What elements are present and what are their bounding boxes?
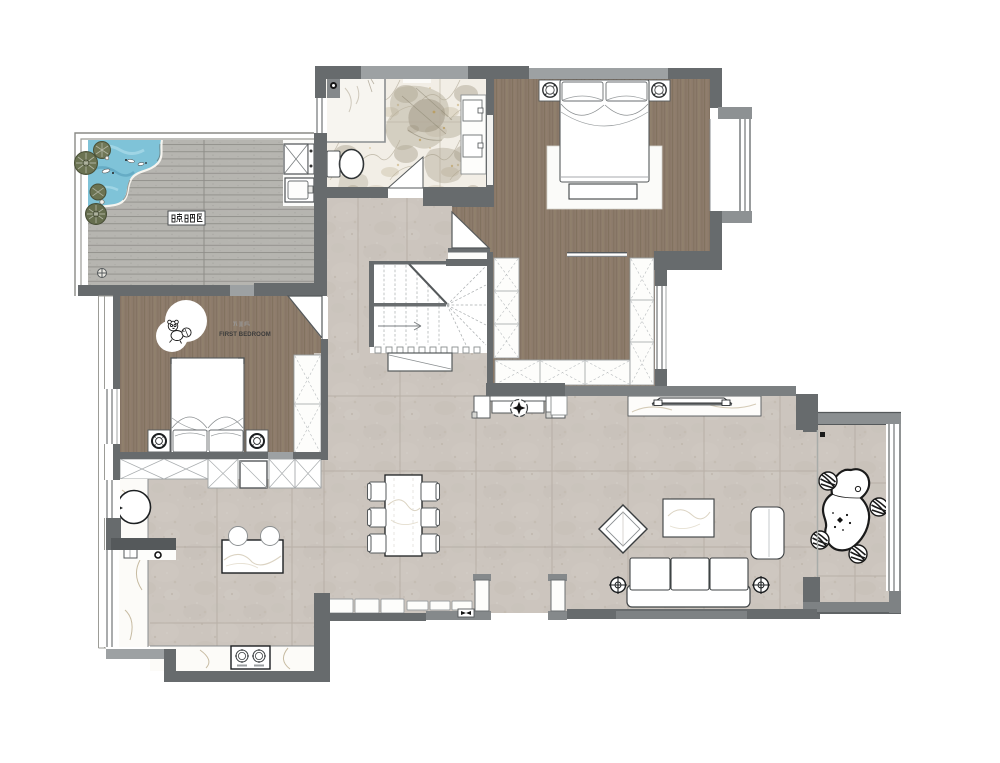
svg-text:FIRST BEDROOM: FIRST BEDROOM (219, 332, 271, 338)
